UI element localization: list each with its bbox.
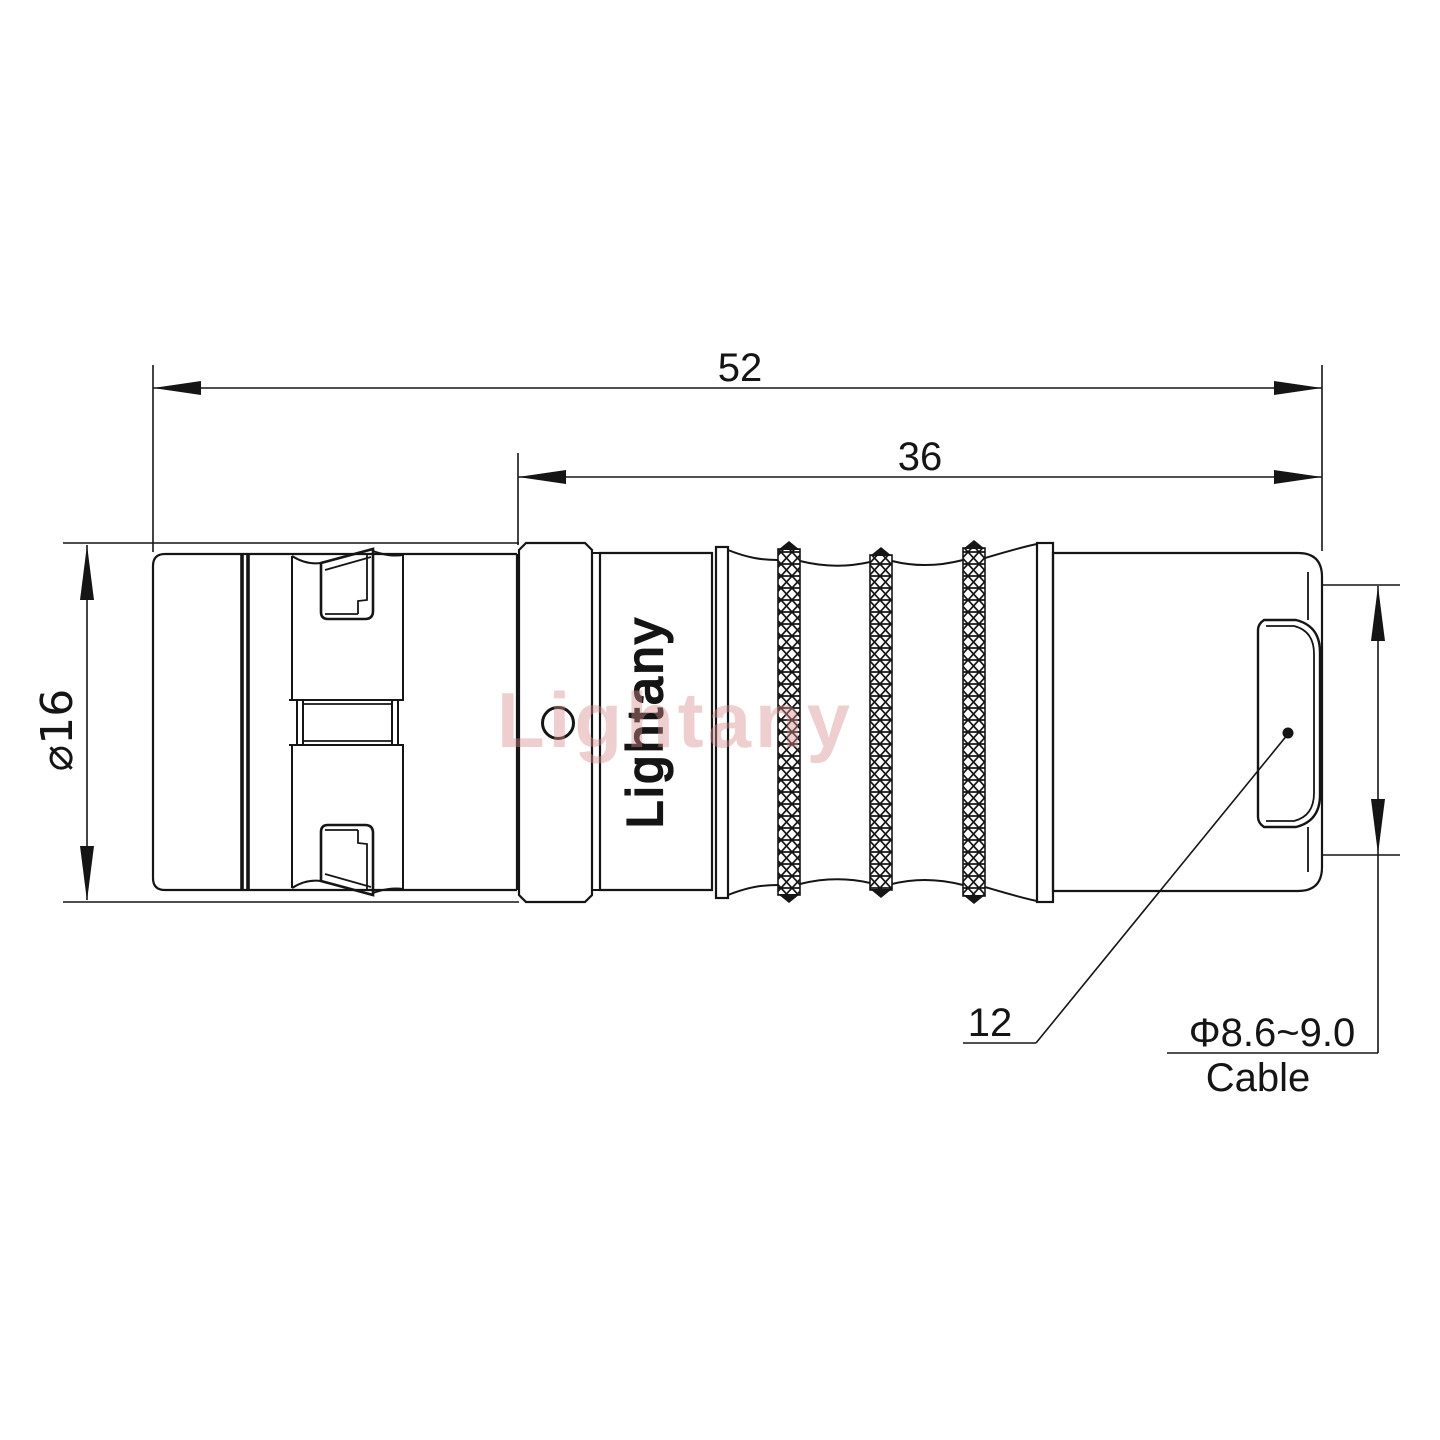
collar [519, 543, 600, 902]
dim-grip-length-label: 36 [898, 435, 943, 479]
dimension-cable-entry [1167, 585, 1400, 1053]
rear-body [1053, 553, 1322, 891]
vent-hole [543, 708, 574, 739]
leader-boot-size [963, 734, 1288, 1043]
engraved-brand-text: Lightany [617, 615, 673, 828]
grip-ring-right [1037, 543, 1053, 902]
cable-spec-label: Φ8.6~9.0 [1189, 1011, 1355, 1055]
knurl-band-3 [963, 540, 985, 904]
grip-ring-left [716, 547, 728, 898]
connector-drawing: 52 36 ⌀16 [0, 0, 1440, 1440]
dim-shell-diameter-label: ⌀16 [32, 689, 83, 771]
front-sleeve [153, 549, 517, 895]
dimension-total-length [153, 365, 1322, 552]
engineering-drawing-page: 52 36 ⌀16 [0, 0, 1440, 1440]
leader-dot [1283, 728, 1294, 739]
cable-boot-face [1258, 620, 1320, 827]
dim-total-length-label: 52 [718, 346, 763, 390]
boot-size-label: 12 [968, 1001, 1013, 1045]
cable-word-label: Cable [1206, 1056, 1311, 1100]
knurl-band-1 [778, 541, 800, 903]
knurled-grip [716, 540, 1053, 904]
knurl-band-2 [870, 547, 892, 898]
